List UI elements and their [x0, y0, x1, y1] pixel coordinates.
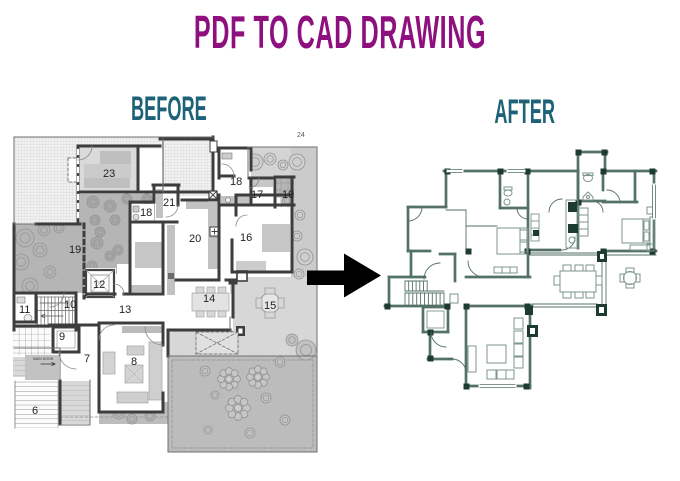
svg-text:6: 6 — [32, 405, 38, 417]
svg-text:17: 17 — [251, 189, 263, 201]
svg-text:11: 11 — [19, 304, 30, 316]
svg-text:15: 15 — [264, 300, 276, 312]
svg-text:19: 19 — [282, 189, 294, 201]
svg-text:12: 12 — [93, 279, 105, 291]
svg-text:10: 10 — [64, 299, 76, 311]
svg-text:23: 23 — [103, 168, 115, 180]
svg-text:20: 20 — [189, 233, 201, 245]
svg-text:18: 18 — [230, 176, 242, 188]
svg-text:MAIN DOOR: MAIN DOOR — [33, 357, 54, 361]
svg-text:19: 19 — [69, 244, 81, 256]
svg-text:21: 21 — [163, 197, 175, 209]
svg-text:8: 8 — [131, 356, 137, 368]
svg-text:13: 13 — [119, 304, 131, 316]
svg-text:16: 16 — [240, 232, 252, 244]
svg-text:7: 7 — [84, 353, 90, 365]
svg-text:14: 14 — [203, 293, 215, 305]
svg-text:18: 18 — [140, 207, 152, 219]
svg-text:24: 24 — [297, 132, 305, 139]
svg-text:9: 9 — [59, 331, 65, 343]
